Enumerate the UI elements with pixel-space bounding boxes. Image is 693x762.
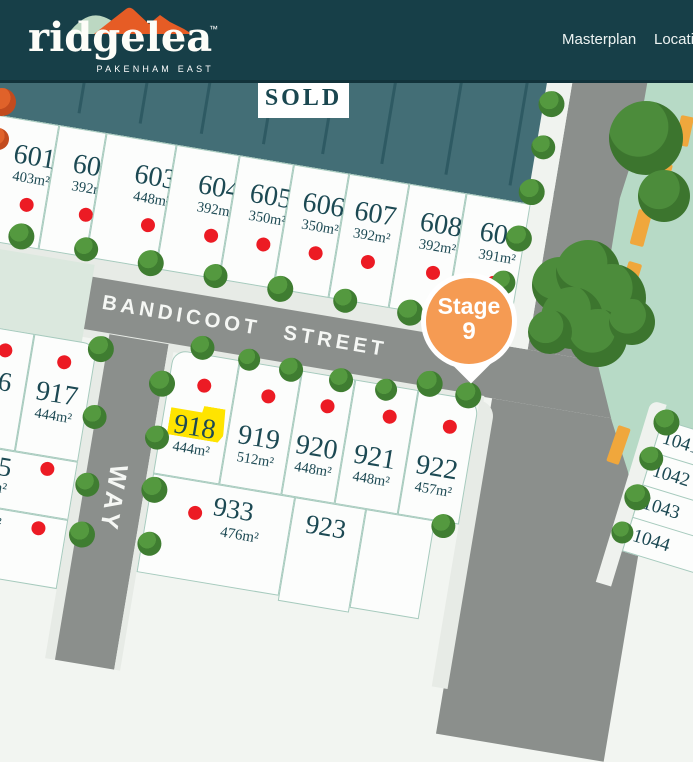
sold-dot	[425, 265, 441, 281]
sold-dot	[359, 254, 375, 270]
sold-sign: SOLD	[258, 79, 349, 118]
nav-masterplan[interactable]: Masterplan	[562, 31, 636, 48]
trademark-symbol: ™	[209, 24, 218, 34]
sold-dot	[139, 217, 155, 233]
sold-dot	[308, 245, 324, 261]
sold-dot	[187, 505, 203, 521]
brand-logo[interactable]: ridgelea ™ PAKENHAM EAST	[28, 4, 218, 78]
sold-dot	[30, 520, 46, 536]
app-header: ridgelea ™ PAKENHAM EAST Masterplan Loca…	[0, 0, 693, 83]
sold-dot	[39, 461, 55, 477]
brand-name: ridgelea	[28, 18, 212, 58]
tree-icon	[609, 101, 683, 175]
brand-tagline: PAKENHAM EAST	[90, 64, 214, 74]
tree-icon	[528, 310, 572, 354]
tree-icon	[609, 299, 655, 345]
lot-unlabeled[interactable]	[350, 509, 436, 619]
sold-dot	[203, 228, 219, 244]
tree-icon	[638, 170, 690, 222]
sold-dot	[19, 197, 35, 213]
sold-dot	[0, 342, 13, 358]
sold-dot	[255, 236, 271, 252]
nav-location[interactable]: Location	[654, 31, 693, 48]
